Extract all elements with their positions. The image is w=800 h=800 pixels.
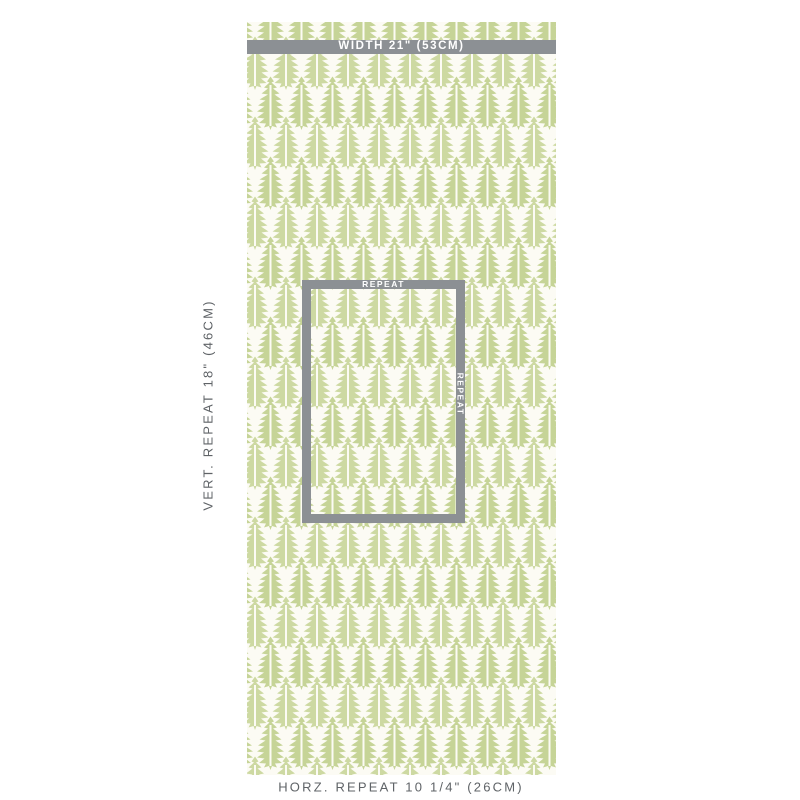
repeat-box-side-label: REPEAT — [456, 373, 465, 416]
product-measurement-diagram: WIDTH 21" (53CM) REPEAT REPEAT VERT. REP… — [0, 0, 800, 800]
repeat-box-top-label: REPEAT — [302, 280, 465, 289]
width-label: WIDTH 21" (53CM) — [338, 41, 464, 53]
repeat-box — [302, 280, 465, 523]
horizontal-repeat-label: HORZ. REPEAT 10 1/4" (26CM) — [278, 781, 524, 794]
vertical-repeat-label: VERT. REPEAT 18" (46CM) — [202, 299, 215, 510]
width-measure-bar: WIDTH 21" (53CM) — [247, 40, 556, 54]
